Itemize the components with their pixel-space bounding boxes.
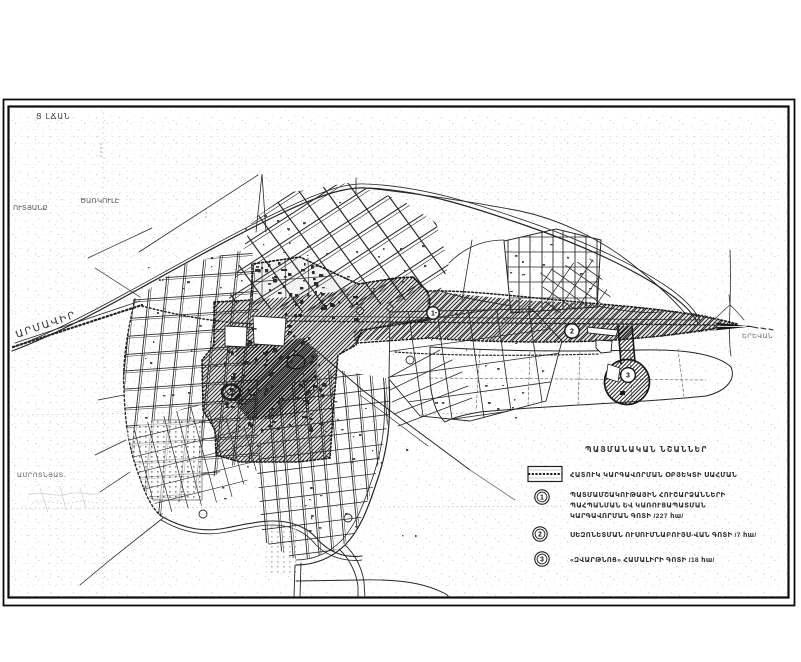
svg-text:3: 3 (540, 557, 544, 564)
svg-text:ՊԱՀՊԱՆՄԱՆ ԵՎ ԿԱՌՈՒՑԱՊԱՏՄԱՆ: ՊԱՀՊԱՆՄԱՆ ԵՎ ԿԱՌՈՒՑԱՊԱՏՄԱՆ (570, 503, 706, 510)
svg-text:2: 2 (538, 532, 542, 539)
svg-text:ՈՒՏՅԱՆՔ: ՈՒՏՅԱՆՔ (13, 205, 48, 212)
svg-text:ՍԵԶՈՆԵՏՄԱՆ ՈՒՍՈՒՄՆԱԲՈՒՅՍ-ՎԱՆ Գ: ՍԵԶՈՆԵՏՄԱՆ ՈՒՍՈՒՄՆԱԲՈՒՅՍ-ՎԱՆ ԳՈՏԻ /7 հա/ (570, 532, 757, 539)
svg-text:ԾԱՌԿՈՒԼԷ: ԾԱՌԿՈՒԼԷ (80, 198, 120, 205)
svg-text:ՀԱՏՈՒԿ ԿԱՐԳԱՎՈՐՄԱՆ ՕԲՅԵԿՏԻ ՍԱՀ: ՀԱՏՈՒԿ ԿԱՐԳԱՎՈՐՄԱՆ ՕԲՅԵԿՏԻ ՍԱՀՄԱՆ (570, 472, 737, 479)
svg-text:Ց ԼՃԱՆ: Ց ԼՃԱՆ (36, 112, 71, 121)
svg-text:1: 1 (431, 311, 435, 318)
svg-text:ՊԱՏՄԱՄՇԱԿՈՒԹԱՅԻՆ ՀՈՒՇԱՐՁԱՆՆԵՐԻ: ՊԱՏՄԱՄՇԱԿՈՒԹԱՅԻՆ ՀՈՒՇԱՐՁԱՆՆԵՐԻ (570, 492, 726, 499)
svg-text:ԿԱՐԳԱՎՈՐՄԱՆ ԳՈՏԻ /227 հա/: ԿԱՐԳԱՎՈՐՄԱՆ ԳՈՏԻ /227 հա/ (570, 513, 684, 520)
svg-text:ՊԱՅՄԱՆԱԿԱՆ ՆՇԱՆՆԵՐ: ՊԱՅՄԱՆԱԿԱՆ ՆՇԱՆՆԵՐ (585, 445, 708, 454)
svg-text:ԱՄՐՈՏՆՅԱՏ.: ԱՄՐՈՏՆՅԱՏ. (17, 472, 66, 479)
svg-text:3: 3 (626, 373, 630, 380)
svg-text:2: 2 (570, 329, 574, 336)
svg-text:ԵՐԵՎԱՆ: ԵՐԵՎԱՆ (742, 333, 773, 340)
svg-text:1: 1 (540, 495, 544, 502)
svg-text:«ԶՎԱՐԹՆՈՑ» ՀԱՄԱԼԻՐԻ ԳՈՏԻ /18 հ: «ԶՎԱՐԹՆՈՑ» ՀԱՄԱԼԻՐԻ ԳՈՏԻ /18 հա/ (570, 557, 715, 564)
